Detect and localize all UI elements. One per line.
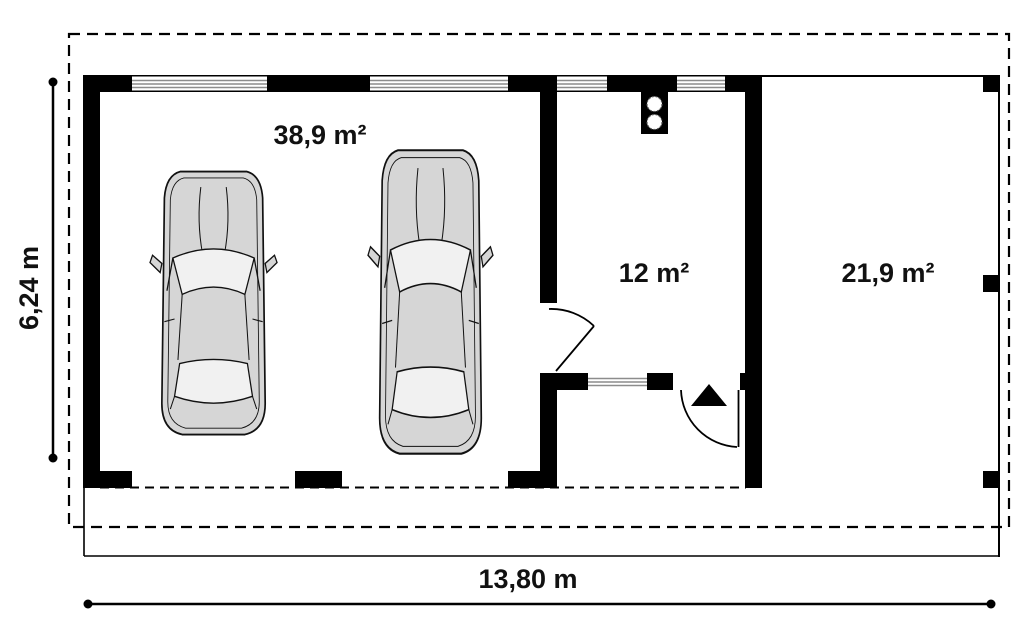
floor-plan: 38,9 m² 12 m² 21,9 m² 6,24 m 13,80 m: [0, 0, 1024, 630]
window-room-north-1: [557, 77, 607, 91]
wall-garage-room-upper: [540, 92, 557, 303]
utility-room-area-label: 12 m²: [594, 258, 714, 288]
floor-plan-drawing: [0, 0, 1024, 630]
wall-room-south-jamb: [740, 373, 745, 390]
dimension-width: [84, 600, 996, 609]
car-icon-right: [368, 150, 493, 453]
terrace-pillar-middle: [983, 275, 1000, 292]
wall-east: [745, 75, 762, 488]
dimension-height: [49, 78, 58, 463]
interior-door: [549, 309, 594, 371]
interior-door-swing-arc: [549, 309, 594, 326]
width-dimension-label: 13,80 m: [448, 564, 608, 594]
wall-west: [83, 75, 100, 488]
wall-room-south-b: [647, 373, 673, 390]
wall-room-south-a: [540, 373, 588, 390]
pier-between-garage-doors: [295, 471, 342, 488]
car-icon-left: [150, 172, 277, 435]
chimney-icon: [641, 92, 668, 134]
window-room-north-2: [677, 77, 725, 91]
terrace-pillar-top: [983, 75, 1000, 92]
terrace-pillar-bottom: [983, 471, 1000, 488]
height-dimension-label: 6,24 m: [14, 208, 44, 368]
interior-door-leaf: [556, 326, 594, 371]
window-room-south: [588, 375, 647, 389]
window-garage-2: [370, 77, 508, 91]
window-garage-1: [132, 77, 267, 91]
garage-area-label: 38,9 m²: [250, 120, 390, 150]
terrace-area-label: 21,9 m²: [818, 258, 958, 288]
pier-south-west: [83, 471, 132, 488]
pier-south-center: [508, 471, 557, 488]
entrance-arrow-icon: [691, 384, 727, 406]
wall-garage-room-lower: [540, 373, 557, 488]
